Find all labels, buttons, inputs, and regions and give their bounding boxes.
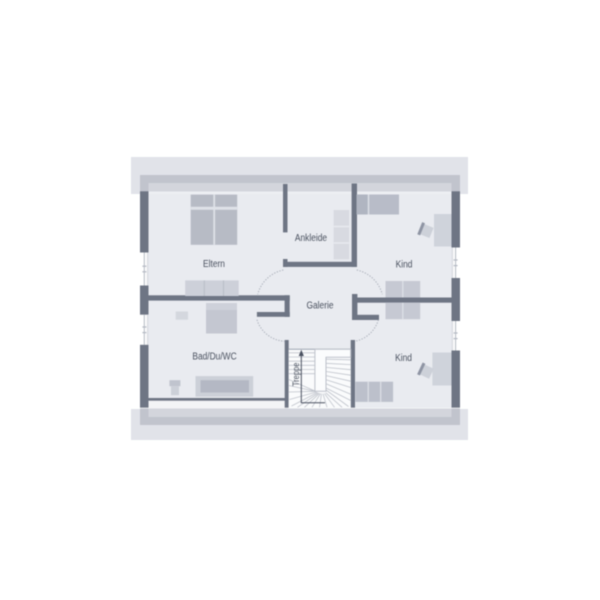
svg-text:Treppe: Treppe <box>290 362 301 386</box>
svg-text:Bad/Du/WC: Bad/Du/WC <box>192 351 236 363</box>
svg-text:Ankleide: Ankleide <box>295 232 327 244</box>
svg-text:Galerie: Galerie <box>306 300 333 312</box>
svg-text:Kind: Kind <box>396 259 413 271</box>
svg-text:Eltern: Eltern <box>203 258 225 270</box>
svg-text:Kind: Kind <box>395 352 412 364</box>
